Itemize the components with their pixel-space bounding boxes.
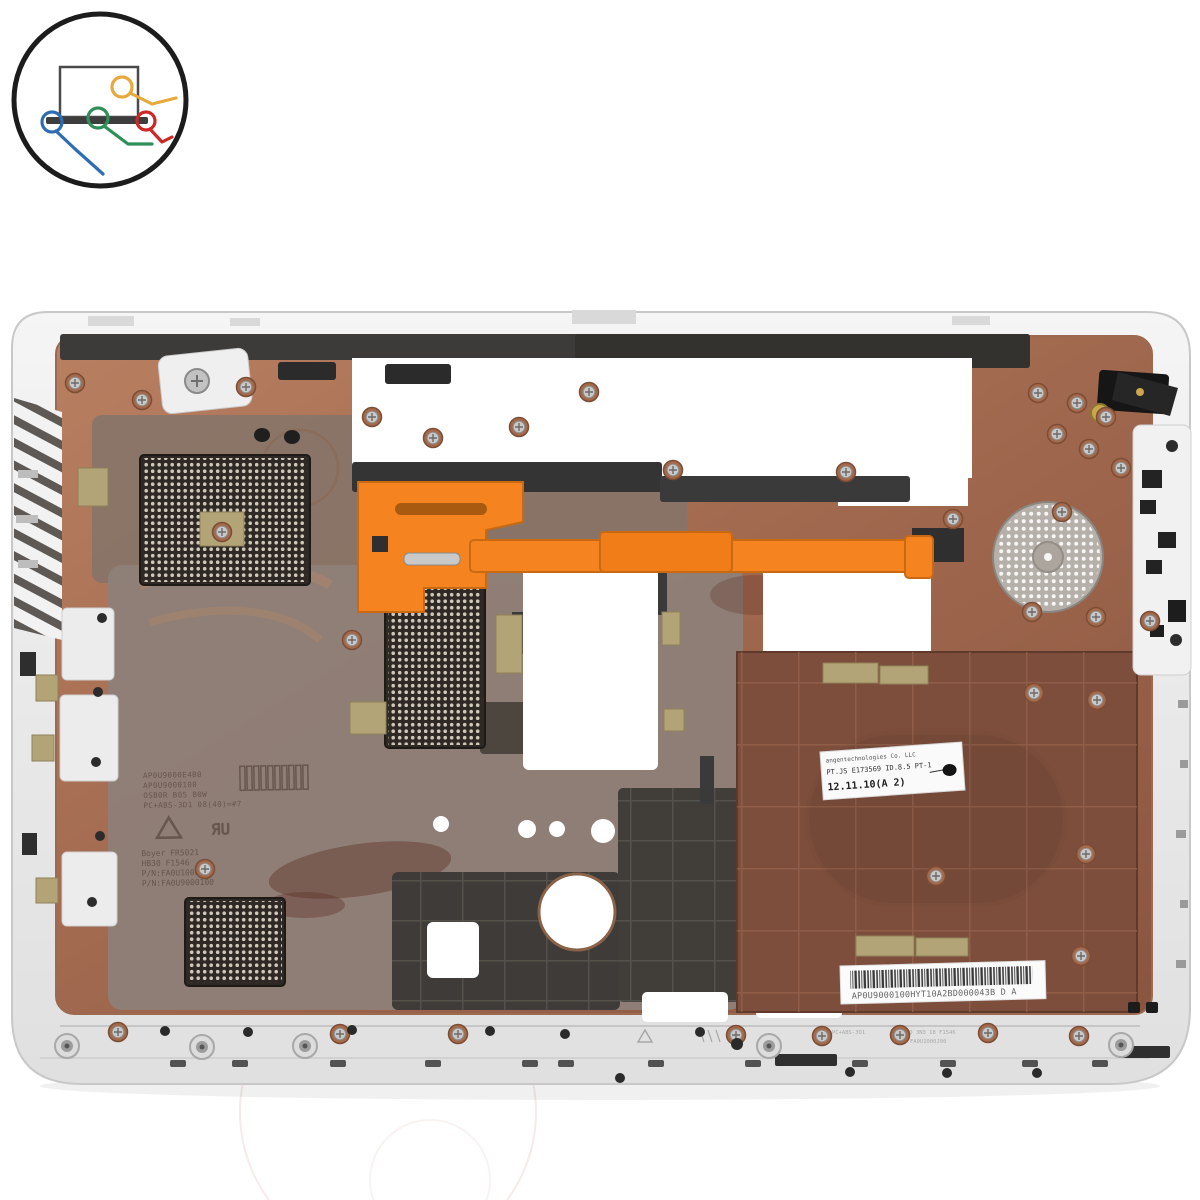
emi-pad	[916, 938, 968, 956]
laptop-bottom-case: angentechnologies Co. LLC PT.JS E173569 …	[12, 310, 1191, 1084]
screw	[1087, 608, 1106, 627]
svg-text:PC+ABS-3D1: PC+ABS-3D1	[832, 1030, 865, 1036]
emi-pad	[880, 666, 928, 684]
screw	[1053, 503, 1072, 522]
screw	[1088, 691, 1107, 710]
svg-text:PC+ABS-3D1 08(40)=#7: PC+ABS-3D1 08(40)=#7	[143, 799, 241, 810]
screw	[813, 1027, 832, 1046]
screw	[213, 523, 232, 542]
screw	[510, 418, 529, 437]
screw	[891, 1026, 910, 1045]
grommet-screw	[55, 1034, 79, 1058]
emi-pad	[856, 936, 914, 956]
screw	[66, 374, 85, 393]
screw	[109, 1023, 128, 1042]
screw	[580, 383, 599, 402]
svg-text:OSB0R B05 B0W: OSB0R B05 B0W	[143, 790, 207, 800]
screw	[837, 463, 856, 482]
screw	[331, 1025, 350, 1044]
screw	[363, 408, 382, 427]
svg-text:HB30 F1546: HB30 F1546	[141, 858, 189, 868]
svg-text:AP0U9000E4B0: AP0U9000E4B0	[143, 770, 202, 780]
ul-mark-icon: ЯU	[211, 820, 231, 839]
screw	[1025, 684, 1044, 703]
screw	[1077, 845, 1096, 864]
screw	[1141, 612, 1160, 631]
speaker-grille	[993, 502, 1103, 612]
grommet-screw	[293, 1034, 317, 1058]
screw	[1072, 947, 1091, 966]
screw	[1048, 425, 1067, 444]
svg-text:JO 3N3 18 F1546: JO 3N3 18 F1546	[906, 1030, 956, 1036]
vent-grille-bottomleft	[185, 898, 285, 986]
emi-pad	[823, 663, 878, 683]
screw	[944, 510, 963, 529]
screw	[196, 860, 215, 879]
laptop-parts-shop-logo	[14, 14, 186, 186]
grommet-screw	[757, 1034, 781, 1058]
screw	[1029, 384, 1048, 403]
screw	[449, 1025, 468, 1044]
screw	[927, 867, 946, 886]
screw	[664, 461, 683, 480]
spec-label: angentechnologies Co. LLC PT.JS E173569 …	[820, 742, 965, 800]
svg-text:Boyer FR5021: Boyer FR5021	[141, 848, 199, 858]
screw	[424, 429, 443, 448]
screw	[1023, 603, 1042, 622]
screw	[1068, 394, 1087, 413]
screw	[1097, 408, 1116, 427]
svg-text:FA0U1000J00: FA0U1000J00	[910, 1039, 946, 1045]
grommet-screw	[1109, 1033, 1133, 1057]
screw	[1080, 440, 1099, 459]
svg-text:AP0U9000100: AP0U9000100	[143, 780, 197, 790]
screw	[1070, 1027, 1089, 1046]
screw	[343, 631, 362, 650]
product-photo-canvas: angentechnologies Co. LLC PT.JS E173569 …	[0, 0, 1200, 1200]
screw	[1112, 459, 1131, 478]
screw	[133, 391, 152, 410]
grommet-screw	[190, 1035, 214, 1059]
barcode-label: AP0U9000100HYT10A2BD000043B D A	[840, 961, 1046, 1004]
screw	[979, 1024, 998, 1043]
screw	[237, 378, 256, 397]
svg-text:P/N:FA0U9000100: P/N:FA0U9000100	[142, 878, 215, 888]
